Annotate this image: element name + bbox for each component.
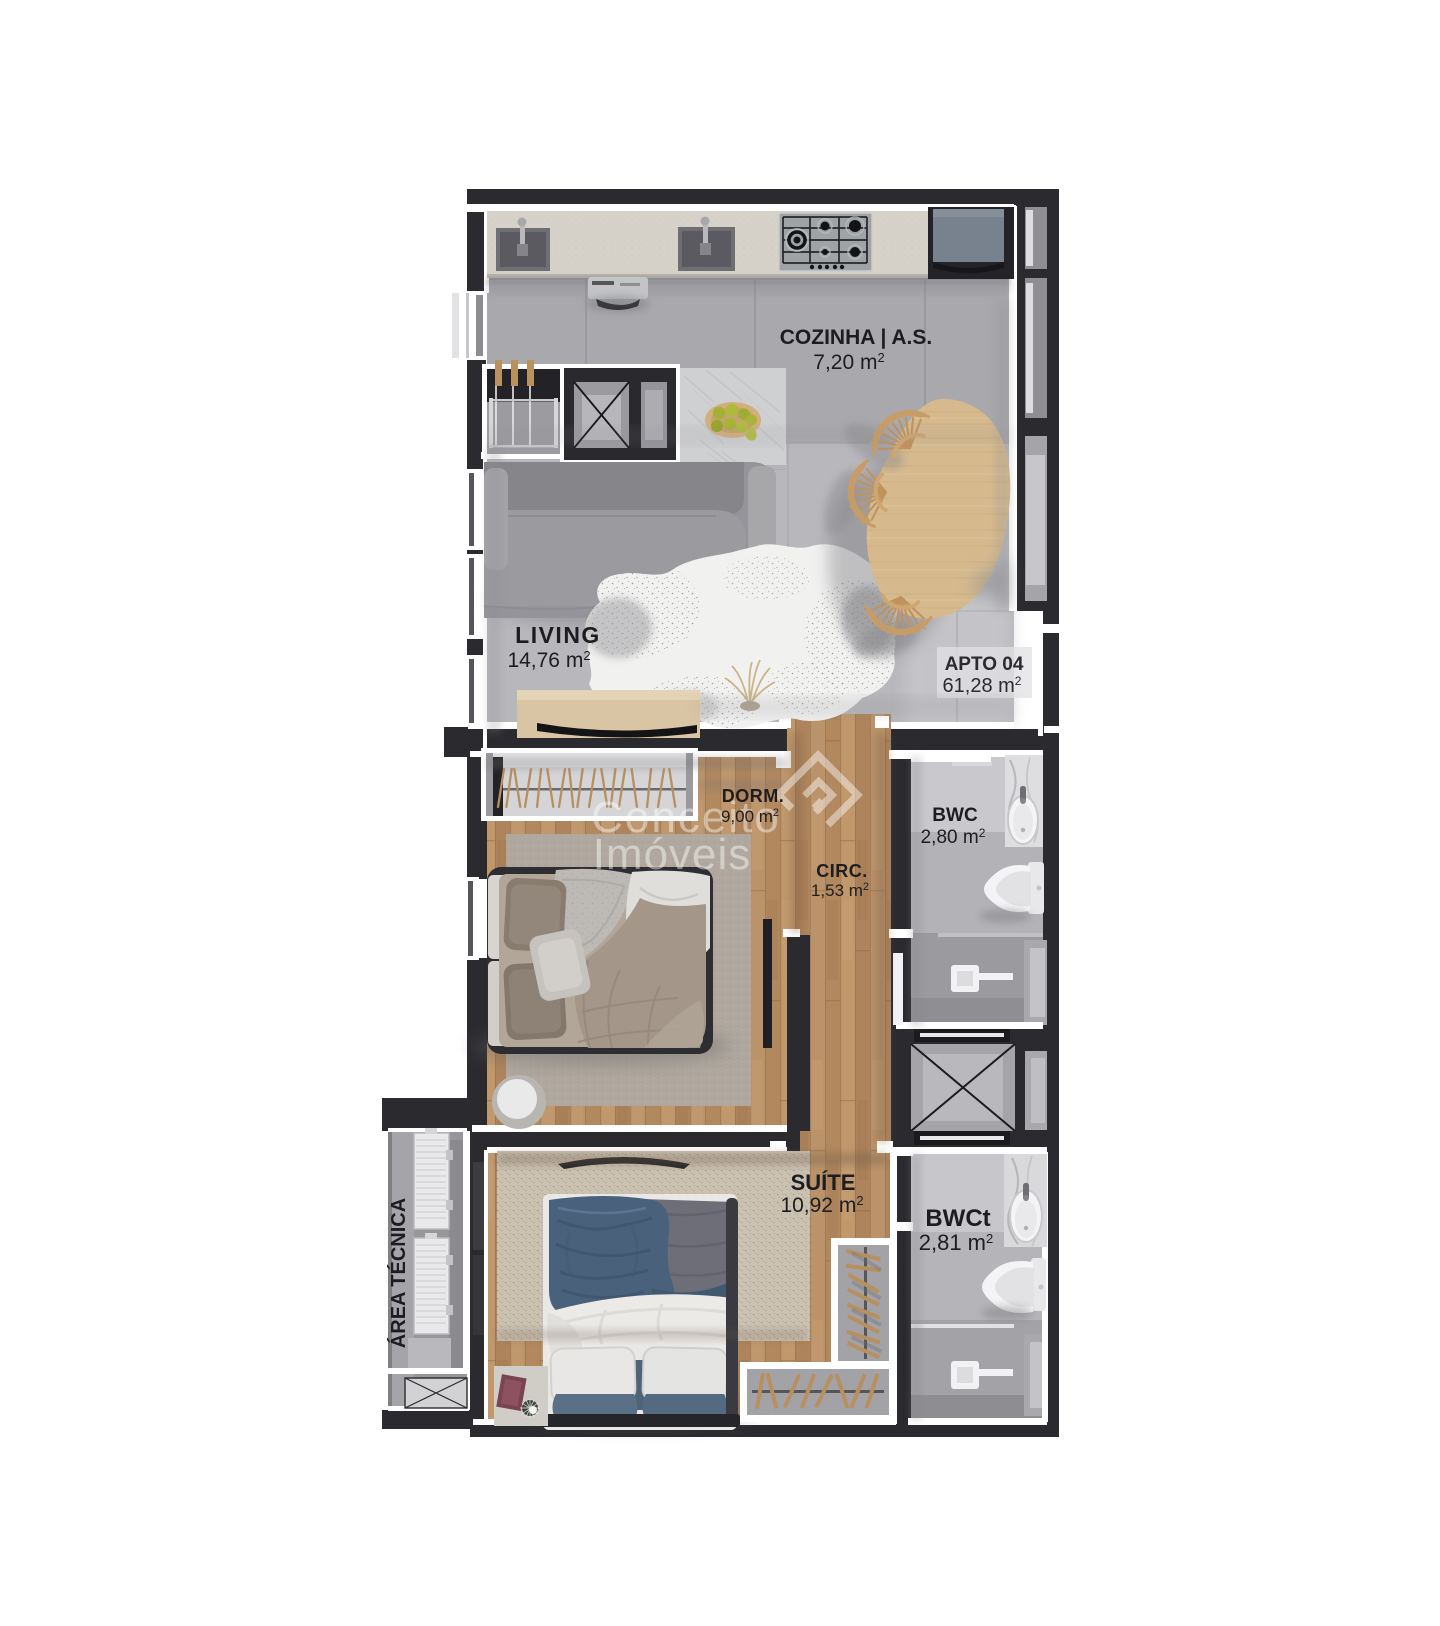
- svg-text:COZINHA | A.S.: COZINHA | A.S.: [780, 326, 933, 349]
- svg-text:7,20 m2: 7,20 m2: [813, 350, 884, 374]
- svg-text:ÁREA TÉCNICA: ÁREA TÉCNICA: [387, 1198, 410, 1348]
- svg-text:2,80 m2: 2,80 m2: [921, 826, 986, 848]
- svg-text:1,53 m2: 1,53 m2: [811, 881, 869, 900]
- svg-text:BWC: BWC: [932, 805, 978, 826]
- svg-text:APTO 04: APTO 04: [945, 654, 1024, 675]
- svg-text:BWCt: BWCt: [925, 1205, 990, 1232]
- svg-text:Imóveis: Imóveis: [593, 830, 752, 879]
- svg-text:9,00 m2: 9,00 m2: [721, 807, 779, 826]
- svg-text:61,28 m2: 61,28 m2: [943, 674, 1022, 697]
- svg-text:10,92 m2: 10,92 m2: [780, 1193, 863, 1217]
- svg-text:LIVING: LIVING: [515, 622, 601, 648]
- svg-text:CIRC.: CIRC.: [816, 861, 868, 881]
- svg-text:DORM.: DORM.: [722, 786, 785, 806]
- svg-text:SUÍTE: SUÍTE: [791, 1170, 856, 1195]
- svg-text:2,81 m2: 2,81 m2: [919, 1230, 994, 1255]
- svg-text:14,76 m2: 14,76 m2: [507, 648, 590, 672]
